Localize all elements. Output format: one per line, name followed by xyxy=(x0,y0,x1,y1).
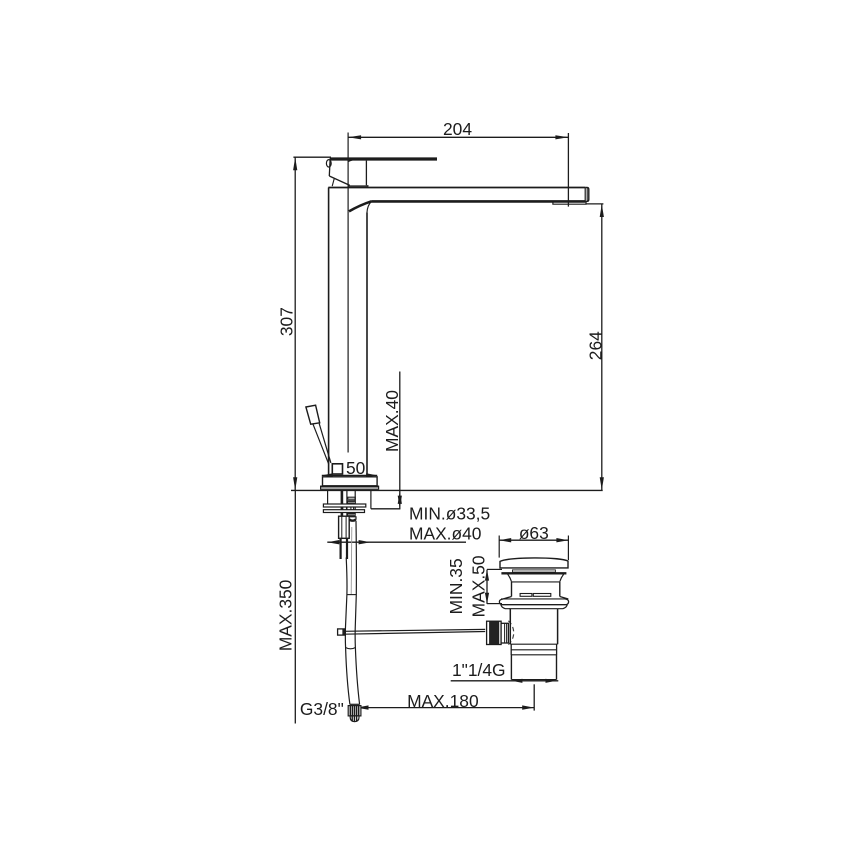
svg-text:264: 264 xyxy=(586,331,606,360)
svg-text:50: 50 xyxy=(346,458,365,478)
svg-text:MAX.40: MAX.40 xyxy=(382,390,402,452)
svg-text:MIN.35: MIN.35 xyxy=(446,558,466,614)
svg-text:307: 307 xyxy=(277,307,297,336)
svg-text:MAX.350: MAX.350 xyxy=(276,580,296,652)
svg-text:ø63: ø63 xyxy=(519,523,549,543)
svg-text:MAX.180: MAX.180 xyxy=(407,691,479,711)
svg-text:MIN.ø33,5: MIN.ø33,5 xyxy=(409,504,490,524)
svg-text:204: 204 xyxy=(443,119,472,139)
svg-text:1"1/4G: 1"1/4G xyxy=(452,660,506,680)
svg-text:MAX.50: MAX.50 xyxy=(469,555,489,617)
svg-text:G3/8": G3/8" xyxy=(300,699,344,719)
svg-text:MAX.ø40: MAX.ø40 xyxy=(409,524,481,544)
